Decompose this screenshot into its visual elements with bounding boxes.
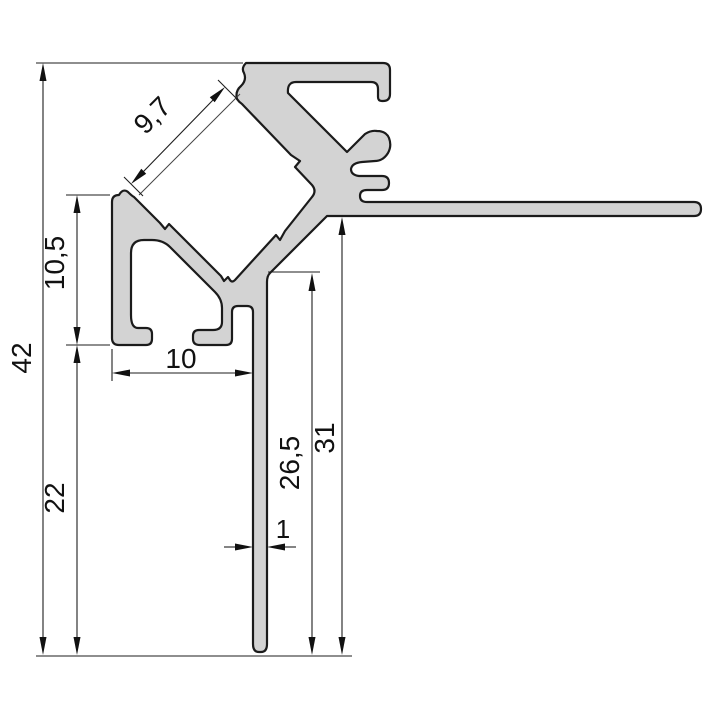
dim-label-1: 1 — [276, 514, 290, 544]
dim-label-10: 10 — [165, 343, 196, 374]
arrow-down-icon — [40, 637, 47, 655]
arrow-right-icon — [235, 370, 253, 377]
dim-label-22: 22 — [39, 482, 70, 513]
dimension-overall-height: 42 — [6, 63, 47, 655]
dim-label-9-7: 9,7 — [128, 91, 177, 140]
profile-outline — [112, 63, 701, 652]
arrow-down-icon — [74, 327, 81, 345]
arrow-down-icon — [74, 637, 81, 655]
arrow-up-icon — [309, 273, 316, 291]
arrow-right-icon — [235, 544, 253, 551]
dim-label-26-5: 26,5 — [274, 436, 305, 491]
dimension-flange-drop: 31 — [309, 217, 346, 655]
dim-label-42: 42 — [6, 342, 37, 373]
arrow-down-icon — [309, 637, 316, 655]
arrow-up-icon — [74, 345, 81, 363]
ext-tick-aperture-high — [218, 80, 237, 99]
arrow-up-icon — [74, 195, 81, 213]
dimension-lower-height: 22 — [39, 345, 81, 655]
arrow-up-icon — [339, 217, 346, 235]
arrow-left-icon — [112, 370, 130, 377]
technical-drawing-canvas: 42 10,5 22 10 9,7 1 2 — [0, 0, 720, 720]
arrow-left-icon — [267, 544, 285, 551]
arrow-down-icon — [339, 637, 346, 655]
dimension-leg-drop: 26,5 — [274, 273, 316, 655]
arrow-diagonal-up-right-icon — [210, 87, 225, 102]
arrow-up-icon — [40, 63, 47, 81]
profile-drawing-svg: 42 10,5 22 10 9,7 1 2 — [0, 0, 720, 720]
dimension-channel-opening: 9,7 — [128, 87, 225, 184]
profile-cross-section — [112, 63, 701, 652]
dimension-foot-height: 10,5 — [39, 195, 81, 345]
dimension-foot-width: 10 — [112, 343, 253, 377]
dim-label-10-5: 10,5 — [39, 236, 70, 291]
dim-label-31: 31 — [309, 422, 340, 453]
